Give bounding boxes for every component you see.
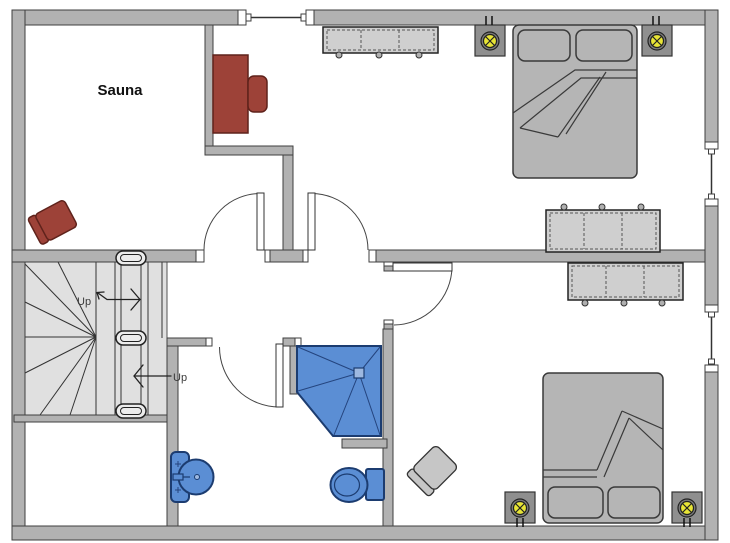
exterior-wall-right-2 [705, 206, 718, 305]
exterior-wall-top-right [314, 10, 718, 25]
pillow [608, 487, 660, 518]
armchair-gray [406, 445, 458, 497]
pillow [548, 487, 603, 518]
dresser-top-wall [323, 27, 438, 58]
door-bathroom [220, 344, 284, 407]
pillow [518, 30, 570, 61]
double-bed-bottom [543, 373, 663, 523]
exterior-wall-right-3 [705, 372, 718, 540]
up-label-lower: Up [173, 372, 187, 384]
exterior-wall-left [12, 10, 25, 540]
sauna-right-wall [205, 25, 213, 152]
shower-curb [342, 439, 387, 448]
double-bed-top [513, 25, 637, 178]
desk-with-chair-red [213, 55, 267, 133]
shower-drain [354, 368, 364, 378]
window-top [246, 14, 306, 21]
wash-basin [171, 452, 214, 502]
sideboard-bedroom-top [546, 204, 660, 252]
sideboard-bedroom-bottom [568, 263, 683, 306]
armchair-red [27, 199, 77, 245]
bedroom-top-furniture [323, 16, 672, 252]
up-label-upper: Up [77, 296, 91, 308]
table-lamp [648, 32, 666, 50]
vestibule-right-wall [283, 155, 293, 252]
sauna-label: Sauna [97, 82, 143, 99]
window-right-lower [709, 312, 715, 364]
door-hall-left [204, 193, 264, 250]
door-bedroom-bottom [393, 263, 452, 325]
wall-caps [196, 10, 718, 372]
toilet [331, 468, 385, 502]
door-hall-right [308, 193, 368, 250]
exterior-wall-right-1 [705, 10, 718, 142]
shower-side-ledge [290, 346, 297, 394]
window-right-upper [709, 149, 715, 199]
hall-wall-mid [265, 250, 308, 262]
floor-plan: Up Up Sauna [0, 0, 730, 543]
hall-wall-left [12, 250, 196, 262]
exterior-wall-top-left [12, 10, 238, 25]
table-lamp [511, 499, 529, 517]
table-lamp [481, 32, 499, 50]
vestibule-top-wall [205, 146, 293, 155]
table-lamp [678, 499, 696, 517]
corner-shower [297, 346, 381, 436]
bedroom-bottom-furniture [406, 263, 702, 527]
exterior-wall-bottom [12, 526, 718, 540]
pillow [576, 30, 632, 61]
bathroom-top-wall-left [167, 338, 212, 346]
